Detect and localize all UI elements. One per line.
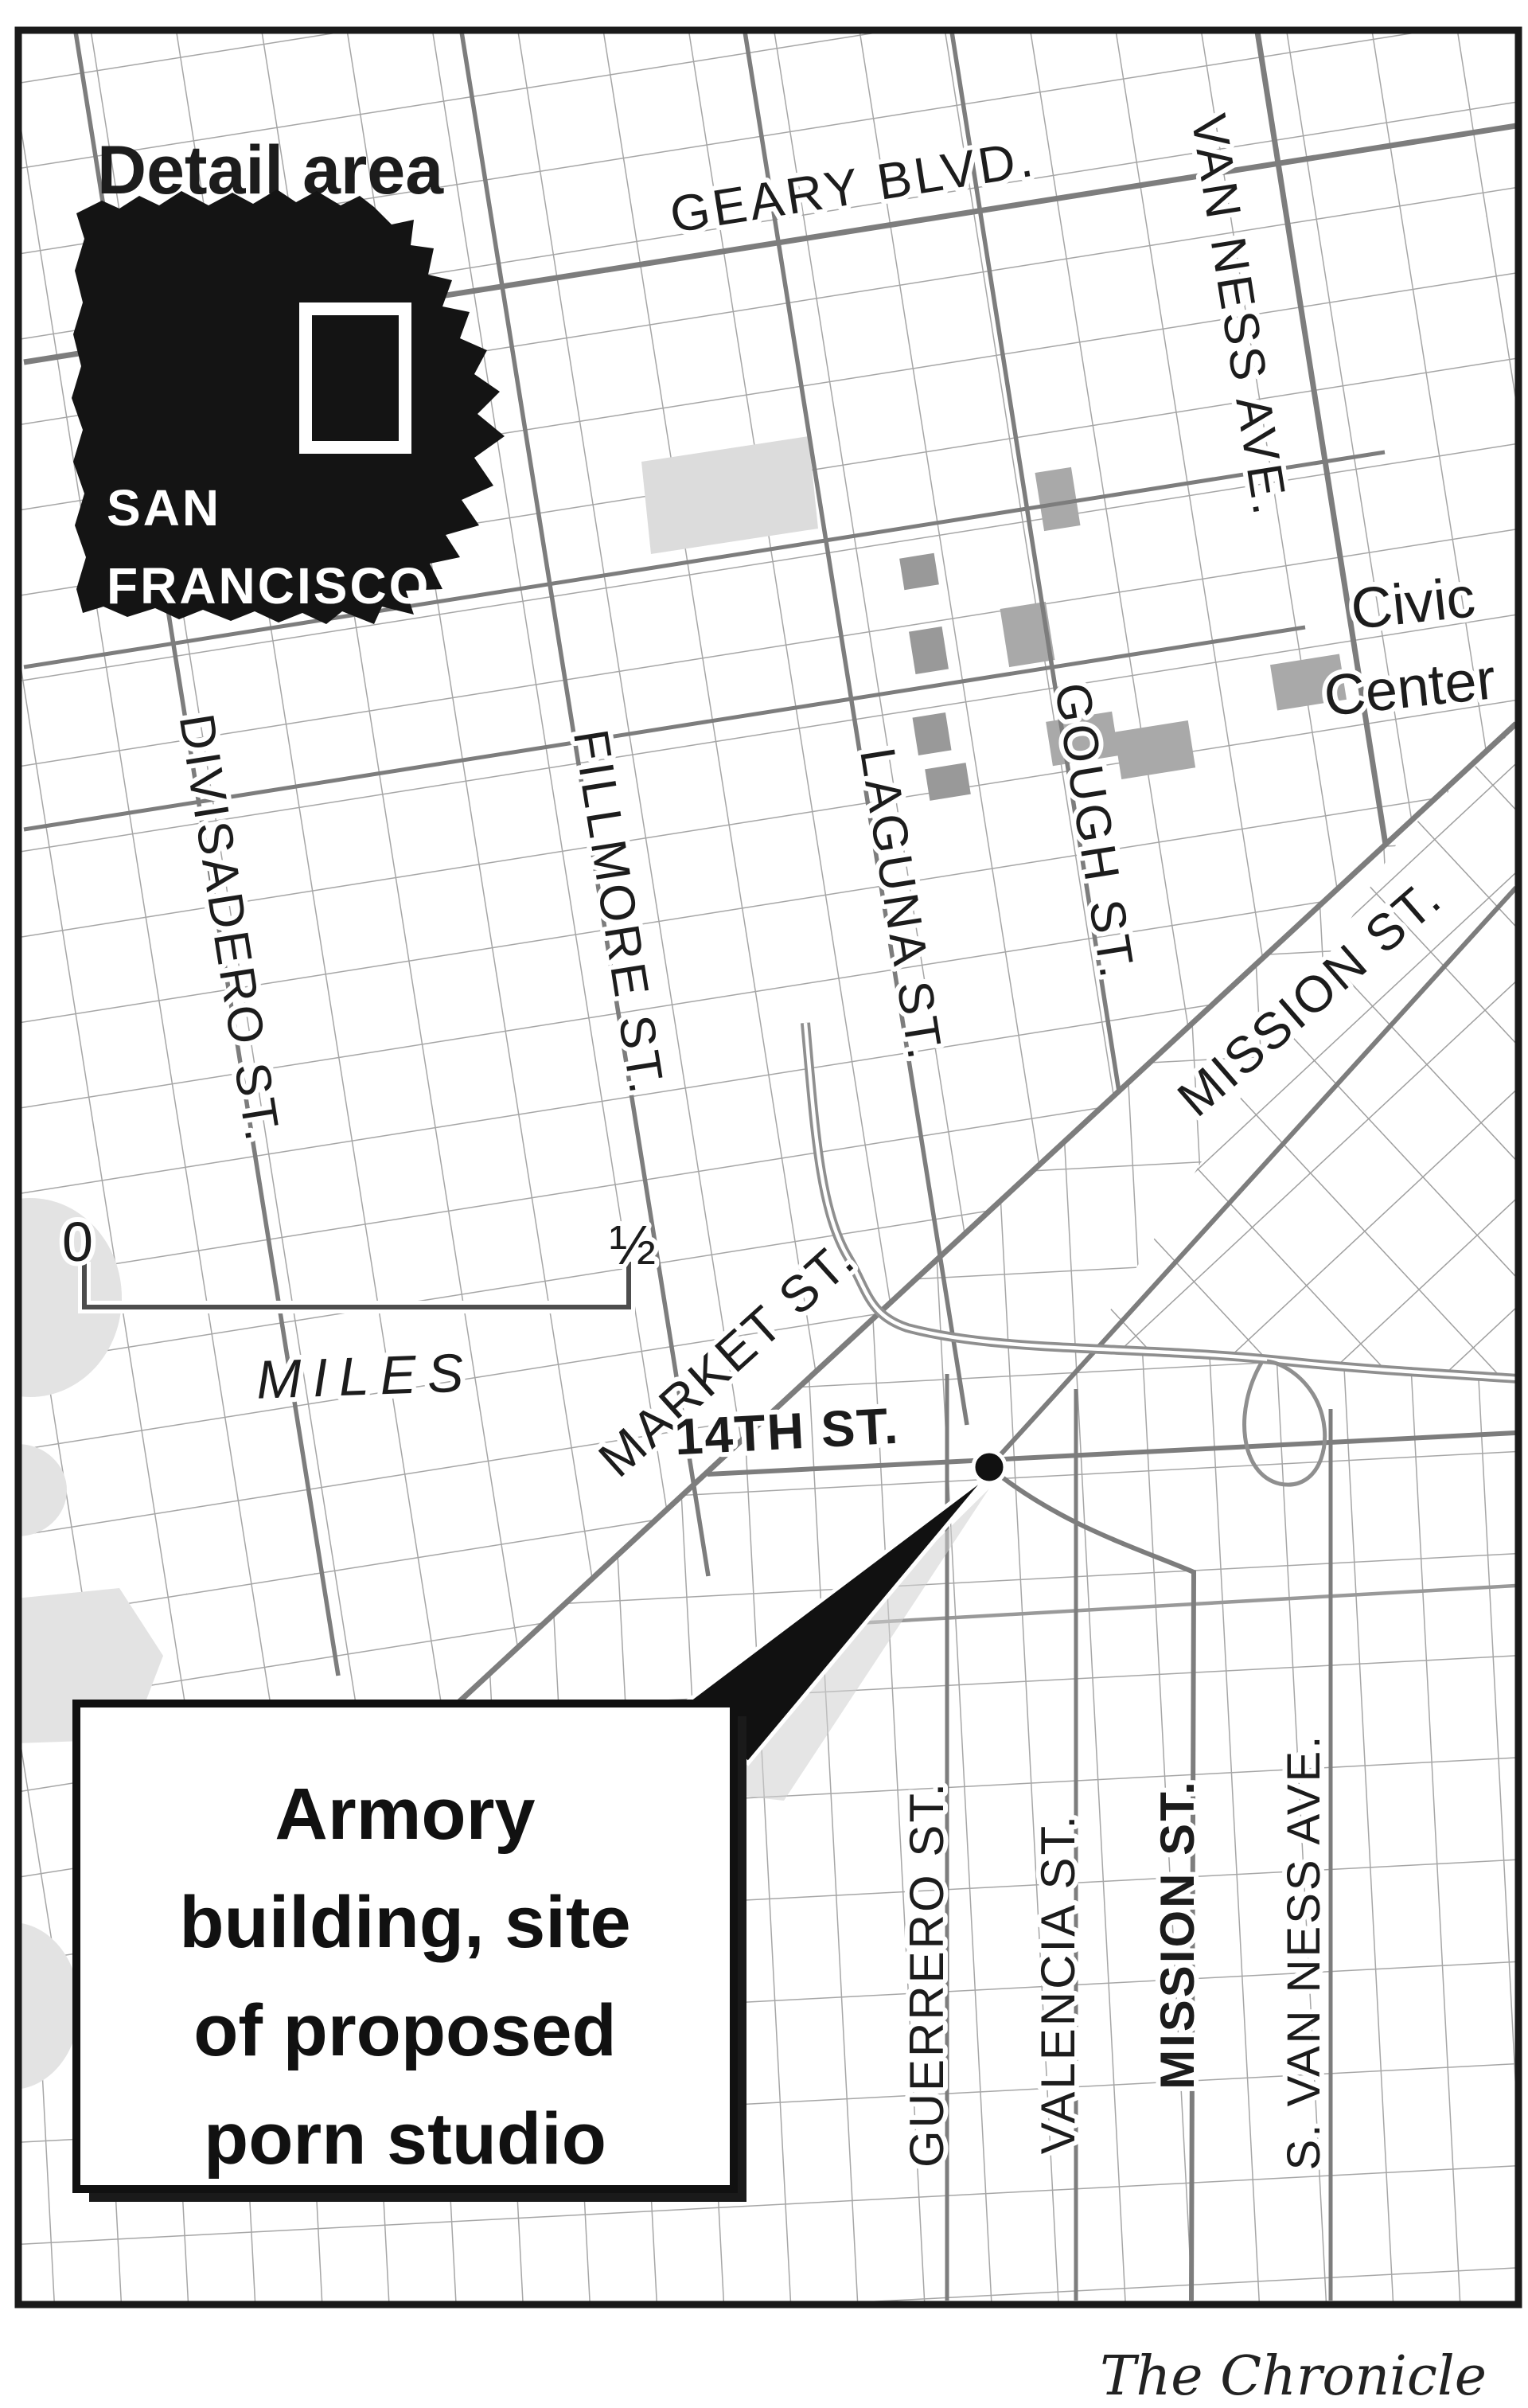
callout-text-line4: porn studio <box>204 2098 606 2180</box>
locator-map: 0 ½ MILES GEARY BLVD. VAN NESS AVE. DIVI… <box>0 0 1528 2408</box>
scale-unit-label: MILES <box>255 1342 476 1411</box>
fourteenth-st-label: 14TH ST. <box>673 1397 901 1466</box>
inset-city-line1: SAN <box>107 479 221 537</box>
callout-text-line2: building, site <box>179 1882 630 1963</box>
newspaper-map-page: 0 ½ MILES GEARY BLVD. VAN NESS AVE. DIVI… <box>0 0 1528 2408</box>
callout-text-line1: Armory <box>275 1774 535 1855</box>
callout: Armory building, site of proposed porn s… <box>76 1704 746 2202</box>
armory-site-dot <box>973 1451 1005 1483</box>
building <box>925 763 971 801</box>
inset-city-line2: FRANCISCO <box>107 557 431 615</box>
scale-half-label: ½ <box>610 1214 656 1276</box>
valencia-st-label: VALENCIA ST. <box>1031 1813 1085 2154</box>
guerrero-st-label: GUERRERO ST. <box>900 1781 953 2168</box>
s-van-ness-ave-label: S. VAN NESS AVE. <box>1278 1734 1330 2171</box>
building <box>899 553 939 590</box>
credit-text: The Chronicle <box>1100 2345 1487 2408</box>
scale-zero-label: 0 <box>62 1211 93 1273</box>
building <box>909 626 949 674</box>
building <box>913 712 952 755</box>
callout-text-line3: of proposed <box>193 1990 617 2071</box>
detail-area-inset: Detail area SAN FRANCISCO <box>72 132 505 624</box>
civic-center-label-line1: Civic <box>1348 565 1479 642</box>
mission-st-south-label: MISSION ST. <box>1151 1779 1204 2090</box>
